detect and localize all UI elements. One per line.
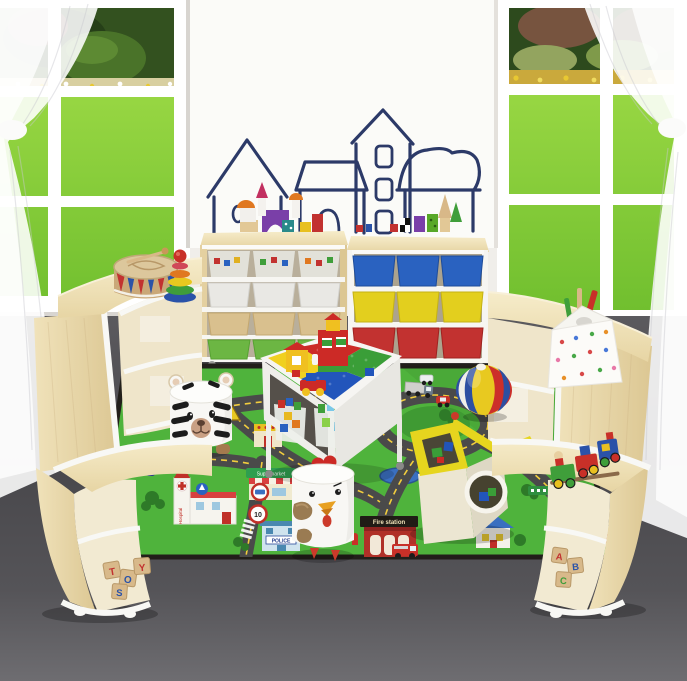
playroom-scene: Hospital Supermarket POLICE Fire station — [0, 0, 687, 681]
no-entry-sign — [252, 484, 268, 500]
shelf-foot — [600, 608, 612, 616]
clear-box — [140, 316, 170, 342]
whiteboard — [186, 0, 498, 248]
bins-yellow-row — [353, 292, 483, 322]
speed-limit-sign: 10 — [250, 506, 267, 523]
tiger-foot — [216, 444, 230, 454]
speed-limit-value: 10 — [254, 512, 262, 519]
bins-blue-row — [353, 256, 483, 286]
duplo-tower — [318, 330, 348, 368]
hospital-label: Hospital — [178, 508, 183, 525]
duplo-figure — [312, 354, 318, 365]
house-front-face — [418, 468, 474, 544]
unit-top — [347, 236, 489, 252]
police-label: POLICE — [272, 538, 291, 544]
curtain-tie — [658, 118, 686, 138]
house-knob — [451, 412, 459, 420]
bins-white-row — [208, 283, 340, 307]
fire-station-label: Fire station — [373, 520, 406, 526]
block-letter: C — [560, 576, 568, 587]
tiger-nose — [197, 420, 205, 426]
caster — [396, 462, 404, 470]
shelf-foot — [74, 608, 86, 616]
shelf-foot — [550, 610, 562, 618]
shadow — [292, 549, 354, 563]
chicken-wattle — [323, 515, 332, 527]
block-letter: S — [116, 588, 123, 599]
caster — [265, 470, 273, 478]
block-letter: Y — [138, 563, 146, 575]
unit-top — [200, 231, 348, 247]
block-letter: B — [572, 562, 580, 574]
shelf-foot — [124, 610, 136, 618]
